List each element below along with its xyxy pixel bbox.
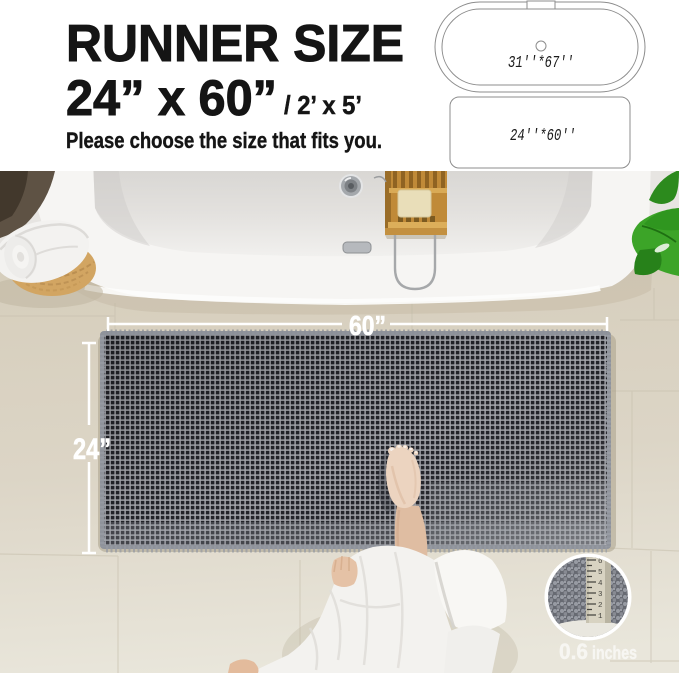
svg-text:inches: inches xyxy=(592,643,637,663)
svg-text:/ 2’ x 5’: / 2’ x 5’ xyxy=(284,90,362,120)
svg-text:2: 2 xyxy=(598,602,603,610)
svg-text:24''*60'': 24''*60'' xyxy=(510,127,576,146)
svg-text:0.6: 0.6 xyxy=(559,639,588,664)
svg-text:1: 1 xyxy=(598,613,603,621)
svg-text:31''*67'': 31''*67'' xyxy=(508,54,574,73)
svg-text:24”: 24” xyxy=(73,433,111,466)
svg-text:4: 4 xyxy=(598,580,603,588)
svg-text:3: 3 xyxy=(598,591,603,599)
svg-text:Please choose the size that fi: Please choose the size that fits you. xyxy=(66,128,382,153)
svg-text:RUNNER SIZE: RUNNER SIZE xyxy=(66,15,404,73)
svg-text:60”: 60” xyxy=(349,310,386,341)
svg-text:24” x 60”: 24” x 60” xyxy=(66,70,277,126)
svg-text:5: 5 xyxy=(598,569,603,577)
